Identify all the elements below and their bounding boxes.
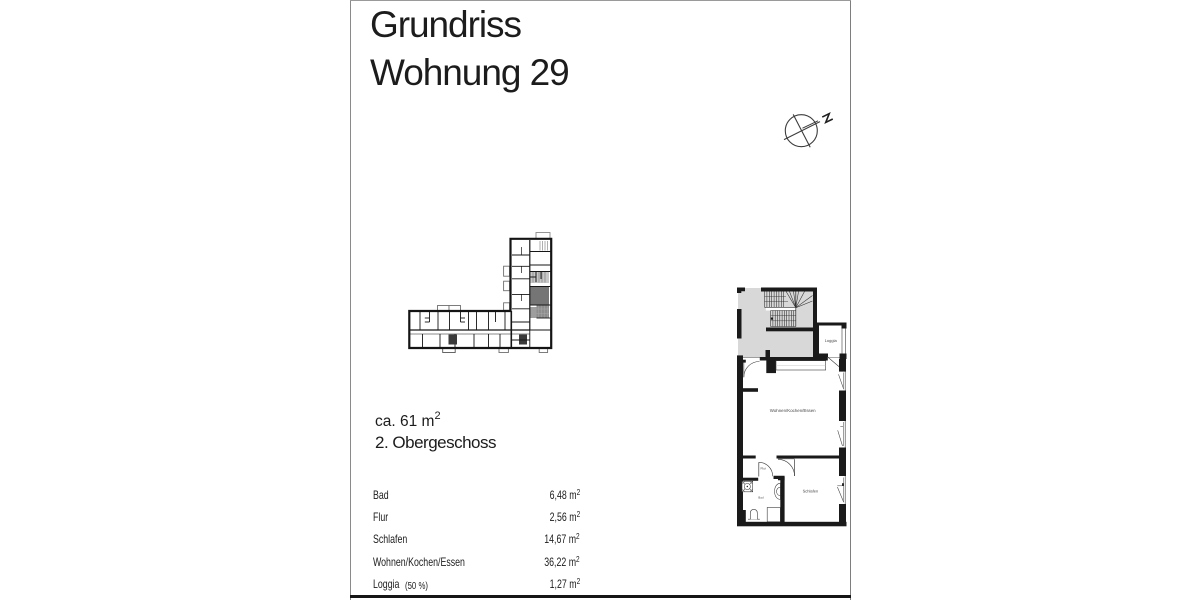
svg-text:Flur: Flur [760,467,766,471]
svg-text:Loggia: Loggia [825,338,838,343]
svg-text:Schlafen: Schlafen [803,488,819,493]
svg-text:Wohnen/Kochen/Essen: Wohnen/Kochen/Essen [770,408,816,413]
svg-text:Bad: Bad [758,496,764,500]
